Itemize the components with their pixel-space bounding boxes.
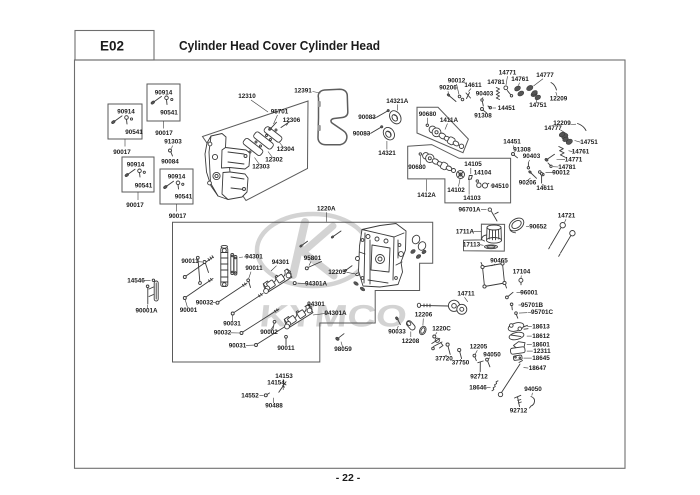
svg-text:95701: 95701 <box>271 108 289 115</box>
svg-text:90541: 90541 <box>125 129 143 136</box>
svg-text:94301A: 94301A <box>305 281 328 288</box>
svg-text:14761: 14761 <box>572 149 590 156</box>
svg-text:37750: 37750 <box>452 360 470 367</box>
svg-text:90031: 90031 <box>223 321 241 328</box>
svg-text:12205: 12205 <box>470 344 488 351</box>
svg-text:37720: 37720 <box>435 356 453 363</box>
svg-text:90002: 90002 <box>260 329 278 336</box>
svg-text:90403: 90403 <box>476 91 494 98</box>
svg-text:14552: 14552 <box>241 392 259 399</box>
svg-text:12304: 12304 <box>277 146 295 153</box>
svg-text:90032: 90032 <box>214 330 232 337</box>
svg-text:90017: 90017 <box>155 130 173 137</box>
svg-text:14102: 14102 <box>447 187 465 194</box>
svg-text:91308: 91308 <box>474 113 492 120</box>
svg-text:94301: 94301 <box>245 254 263 261</box>
svg-text:90012: 90012 <box>448 78 466 85</box>
svg-text:1220C: 1220C <box>432 326 451 333</box>
svg-text:14721: 14721 <box>558 213 576 220</box>
svg-text:90001A: 90001A <box>135 307 158 314</box>
svg-text:90914: 90914 <box>155 90 173 97</box>
svg-text:90001: 90001 <box>180 307 198 314</box>
svg-text:91303: 91303 <box>164 139 182 146</box>
svg-text:12206: 12206 <box>415 312 433 319</box>
svg-text:12205: 12205 <box>328 269 346 276</box>
svg-text:90403: 90403 <box>523 153 541 160</box>
svg-text:94050: 94050 <box>483 351 501 358</box>
svg-text:17104: 17104 <box>513 269 531 276</box>
svg-text:12391: 12391 <box>294 88 312 95</box>
svg-text:12302: 12302 <box>265 157 283 164</box>
svg-text:94510: 94510 <box>491 183 509 190</box>
svg-text:1711A: 1711A <box>456 229 475 236</box>
svg-text:14546: 14546 <box>127 278 145 285</box>
svg-text:94301: 94301 <box>307 301 325 308</box>
svg-text:90914: 90914 <box>117 109 135 116</box>
svg-text:14611: 14611 <box>536 185 554 192</box>
svg-text:14761: 14761 <box>511 76 529 83</box>
svg-text:90011: 90011 <box>245 265 263 272</box>
svg-text:12208: 12208 <box>402 338 420 345</box>
svg-text:92712: 92712 <box>510 408 528 415</box>
svg-text:14781: 14781 <box>487 79 505 86</box>
svg-text:12303: 12303 <box>252 164 270 171</box>
svg-text:90031: 90031 <box>229 343 247 350</box>
svg-text:14451: 14451 <box>503 139 521 146</box>
svg-text:96001: 96001 <box>520 290 538 297</box>
svg-text:95701B: 95701B <box>521 302 544 309</box>
svg-text:12310: 12310 <box>238 93 256 100</box>
svg-text:14103: 14103 <box>463 195 481 202</box>
svg-text:1412A: 1412A <box>417 192 436 199</box>
svg-text:90914: 90914 <box>168 174 186 181</box>
svg-text:14104: 14104 <box>474 170 492 177</box>
svg-text:92712: 92712 <box>470 374 488 381</box>
svg-text:90206: 90206 <box>439 85 457 92</box>
svg-text:90680: 90680 <box>408 164 426 171</box>
svg-text:90680: 90680 <box>419 111 437 118</box>
svg-text:90033: 90033 <box>388 328 406 335</box>
svg-text:98059: 98059 <box>334 346 352 353</box>
svg-text:14321: 14321 <box>378 150 396 157</box>
svg-text:90017: 90017 <box>169 213 187 220</box>
svg-text:12209: 12209 <box>550 96 568 103</box>
svg-text:90017: 90017 <box>126 202 144 209</box>
svg-text:94301: 94301 <box>272 259 290 266</box>
svg-text:18646: 18646 <box>469 385 487 392</box>
svg-text:14751: 14751 <box>529 102 547 109</box>
svg-text:18645: 18645 <box>532 355 550 362</box>
svg-text:E02: E02 <box>100 38 124 53</box>
svg-text:18612: 18612 <box>532 333 550 340</box>
svg-text:18613: 18613 <box>532 324 550 331</box>
svg-text:18647: 18647 <box>529 365 547 372</box>
svg-text:17113: 17113 <box>463 242 481 249</box>
svg-text:95801: 95801 <box>304 255 322 262</box>
svg-text:90541: 90541 <box>175 194 193 201</box>
svg-text:14154: 14154 <box>267 379 285 386</box>
svg-text:90011: 90011 <box>181 258 199 265</box>
svg-text:14777: 14777 <box>544 125 562 132</box>
svg-text:12306: 12306 <box>283 117 301 124</box>
svg-text:14611: 14611 <box>464 82 482 89</box>
svg-text:14711: 14711 <box>457 290 475 297</box>
svg-text:90012: 90012 <box>552 170 570 177</box>
svg-text:90084: 90084 <box>161 159 179 166</box>
svg-text:90488: 90488 <box>265 402 283 409</box>
svg-text:12311: 12311 <box>533 348 551 355</box>
svg-text:14451: 14451 <box>498 105 516 112</box>
svg-text:90541: 90541 <box>160 110 178 117</box>
svg-text:90083: 90083 <box>358 114 376 121</box>
svg-text:90083: 90083 <box>353 130 371 137</box>
svg-text:14105: 14105 <box>464 161 482 168</box>
svg-text:1220A: 1220A <box>317 206 336 213</box>
svg-text:14771: 14771 <box>565 157 583 164</box>
svg-text:90914: 90914 <box>127 162 145 169</box>
svg-text:14777: 14777 <box>536 72 554 79</box>
svg-text:95701C: 95701C <box>531 309 554 316</box>
svg-text:90652: 90652 <box>529 224 547 231</box>
svg-text:94050: 94050 <box>524 386 542 393</box>
svg-text:90011: 90011 <box>277 345 295 352</box>
svg-text:94301A: 94301A <box>324 310 347 317</box>
svg-text:14321A: 14321A <box>386 98 409 105</box>
svg-text:96701A: 96701A <box>458 207 481 214</box>
svg-text:- 22 -: - 22 - <box>336 472 361 484</box>
svg-text:Cylinder Head Cover Cylinder: Cylinder Head Cover Cylinder Head <box>179 39 380 53</box>
svg-text:90541: 90541 <box>135 183 153 190</box>
svg-text:90032: 90032 <box>196 300 214 307</box>
svg-text:14751: 14751 <box>580 139 598 146</box>
svg-text:90206: 90206 <box>519 180 537 187</box>
svg-text:1411A: 1411A <box>440 117 459 124</box>
svg-text:90017: 90017 <box>113 149 131 156</box>
